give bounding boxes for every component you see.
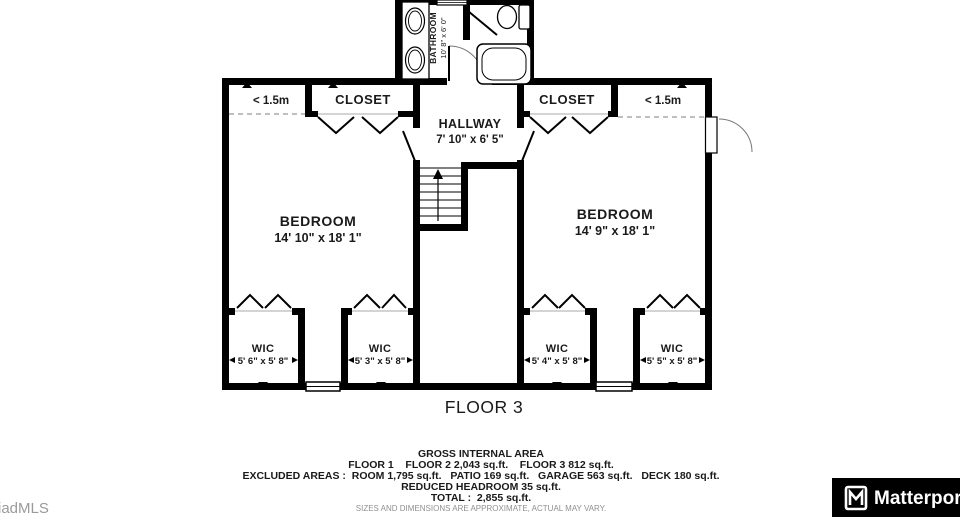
- bifold-door: [265, 295, 291, 308]
- dim-arrow-icon: [640, 357, 646, 363]
- walls: [222, 0, 712, 390]
- bathroom-label: BATHROOM: [428, 12, 438, 64]
- closet-right-label: CLOSET: [539, 92, 595, 107]
- wall: [341, 308, 348, 390]
- dim-arrow-icon: [584, 357, 590, 363]
- bifold-door: [572, 117, 608, 133]
- bifold-door: [559, 295, 585, 308]
- plan-captions: FLOOR 3 GROSS INTERNAL AREA FLOOR 1 FLOO…: [242, 397, 719, 513]
- wall: [461, 162, 468, 231]
- bifold-door: [532, 295, 558, 308]
- dim-arrow-icon: [348, 357, 354, 363]
- hallway-label: HALLWAY: [439, 117, 502, 131]
- bedroom-left-label: BEDROOM: [280, 213, 357, 229]
- floor-title: FLOOR 3: [445, 397, 523, 417]
- bifold-door: [237, 295, 263, 308]
- toilet-tank: [519, 5, 530, 29]
- wall: [461, 162, 524, 169]
- footer-disclaimer: SIZES AND DIMENSIONS ARE APPROXIMATE, AC…: [356, 504, 606, 513]
- bifold-door: [318, 117, 354, 133]
- wall: [398, 111, 420, 117]
- wic-4-dims: 5' 5" x 5' 8": [647, 356, 698, 367]
- wall: [222, 78, 229, 390]
- wall: [222, 308, 235, 315]
- bifold-door: [362, 117, 398, 133]
- bifold-door: [382, 295, 406, 308]
- hallway-dims: 7' 10" x 6' 5": [436, 134, 504, 146]
- staircase: [420, 168, 461, 221]
- door-leaf: [403, 131, 415, 161]
- bedroom-right-dims: 14' 9" x 18' 1": [575, 224, 655, 238]
- bedroom-left-dims: 14' 10" x 18' 1": [274, 231, 361, 245]
- headroom-label-left: < 1.5m: [253, 95, 289, 107]
- matterport-branding: Matterport: [832, 478, 960, 517]
- floorplan-page: BATHROOM 10' 8" x 6' 0" < 1.5m < 1.5m CL…: [0, 0, 960, 517]
- wic-3-label: WIC: [546, 343, 569, 355]
- wic-3-dims: 5' 4" x 5' 8": [532, 356, 583, 367]
- wall: [298, 308, 305, 390]
- dim-arrow-icon: [407, 357, 413, 363]
- windows: [306, 0, 632, 391]
- bifold-door: [674, 295, 700, 308]
- wic-1-dims: 5' 6" x 5' 8": [238, 356, 289, 367]
- wall: [633, 308, 645, 315]
- wall: [292, 308, 305, 315]
- mls-watermark: iadMLS: [0, 500, 49, 517]
- door-arc: [719, 119, 752, 152]
- wall: [608, 111, 618, 117]
- window: [306, 382, 340, 391]
- wic-1-label: WIC: [252, 343, 275, 355]
- bathtub-inner: [482, 48, 526, 80]
- wall: [590, 308, 597, 390]
- sink-icon: [409, 50, 422, 70]
- door-leaf: [706, 117, 718, 153]
- door-leaf: [522, 131, 534, 161]
- wall: [408, 308, 420, 315]
- wall: [633, 308, 640, 390]
- dim-arrow-icon: [292, 357, 298, 363]
- dim-arrow-icon: [699, 357, 705, 363]
- dim-arrow-icon: [524, 357, 530, 363]
- wic-2-dims: 5' 3" x 5' 8": [355, 356, 406, 367]
- wall: [341, 308, 352, 315]
- wall: [467, 0, 534, 5]
- toilet-bowl-icon: [498, 6, 517, 29]
- window: [596, 382, 632, 391]
- bifold-door: [354, 295, 380, 308]
- wall: [705, 152, 712, 390]
- window: [437, 0, 467, 5]
- wall: [305, 111, 318, 117]
- wall: [463, 0, 470, 40]
- wall: [413, 160, 420, 390]
- wic-2-label: WIC: [369, 343, 392, 355]
- stairs-up-arrow-icon: [433, 169, 443, 179]
- wall: [517, 160, 524, 390]
- wall: [395, 0, 402, 85]
- bathroom-dims: 10' 8" x 6' 0": [439, 17, 448, 58]
- sink-icon: [409, 11, 422, 31]
- wall: [517, 308, 530, 315]
- wall: [413, 85, 420, 128]
- dim-arrow-icon: [229, 357, 235, 363]
- closet-left-label: CLOSET: [335, 92, 391, 107]
- wall: [700, 308, 712, 315]
- bedroom-right-label: BEDROOM: [577, 206, 654, 222]
- wall: [517, 85, 524, 128]
- floorplan-drawing: BATHROOM 10' 8" x 6' 0" < 1.5m < 1.5m CL…: [0, 0, 960, 517]
- bifold-door: [647, 295, 673, 308]
- wall: [585, 308, 597, 315]
- headroom-label-right: < 1.5m: [645, 95, 681, 107]
- wall: [413, 224, 468, 231]
- footer-total-line: TOTAL : 2,855 sq.ft.: [431, 492, 531, 504]
- bifold-door: [530, 117, 566, 133]
- door-leaf: [468, 11, 497, 35]
- brand-wordmark: Matterport: [874, 488, 960, 509]
- wall: [517, 111, 530, 117]
- wall: [705, 78, 712, 118]
- wic-4-label: WIC: [661, 343, 684, 355]
